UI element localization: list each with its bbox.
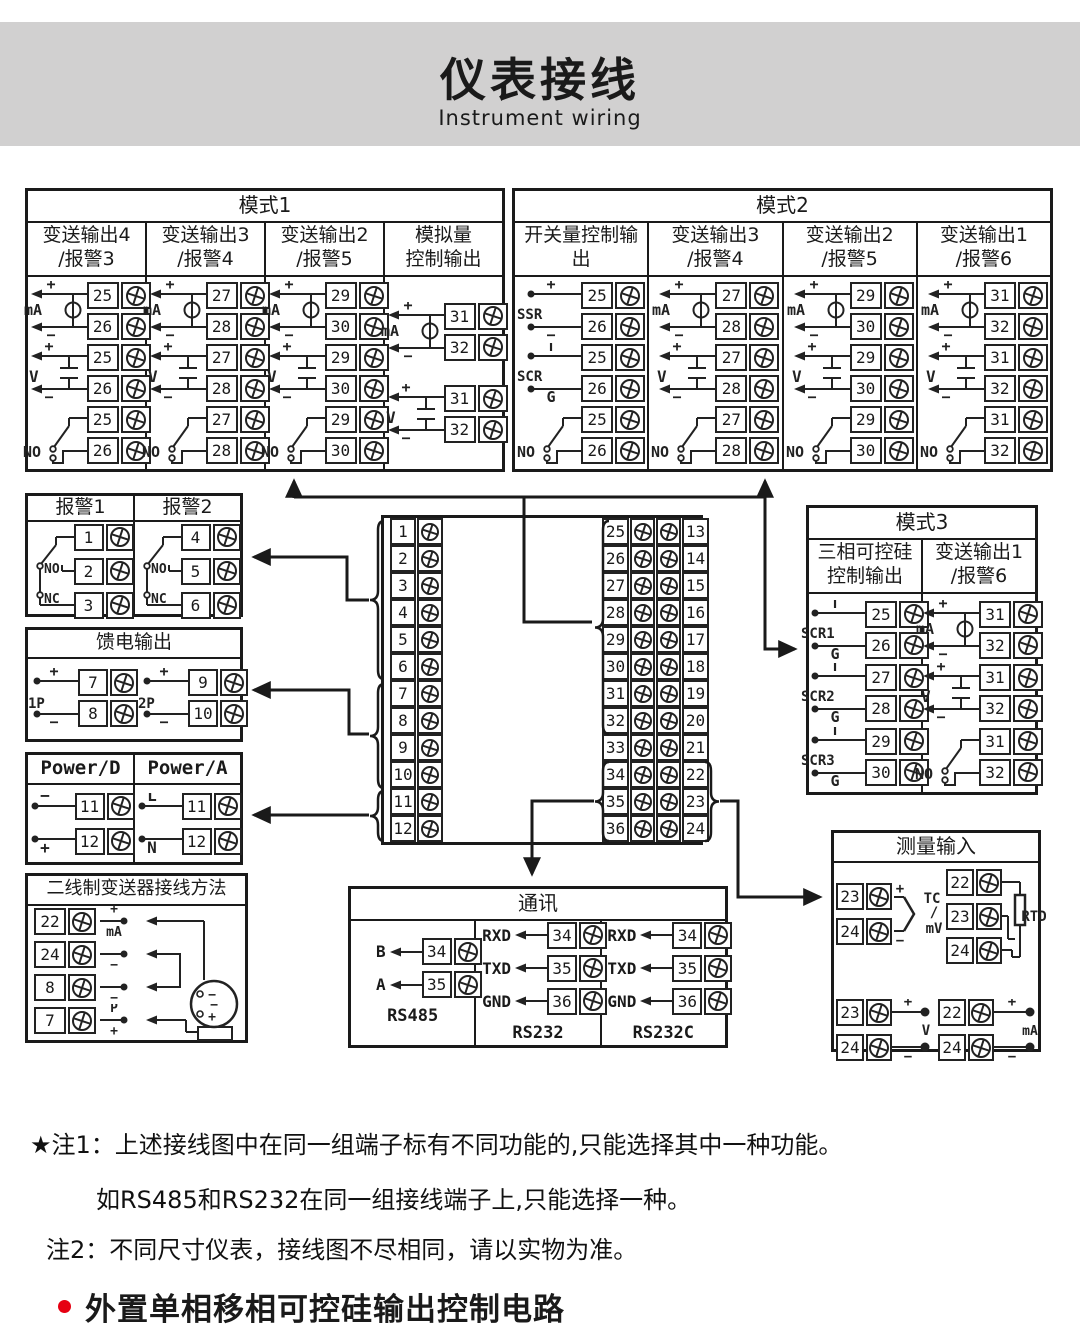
screw-icon [707, 957, 729, 979]
terminal-row: 29 [850, 282, 914, 309]
terminal-row: 7 [34, 1007, 96, 1034]
screw-icon [109, 594, 131, 616]
svg-text:V: V [921, 687, 931, 706]
svg-text:V: V [926, 367, 936, 386]
block-row-left: 1 [390, 518, 443, 545]
terminal-screw [478, 385, 508, 412]
terminal-row: 27 [715, 406, 779, 433]
screw-icon [619, 285, 641, 307]
screw-icon [659, 819, 679, 839]
svg-text:SSR: SSR [517, 307, 543, 323]
terminal-number: 4 [181, 524, 211, 551]
svg-text:mA: mA [921, 301, 939, 319]
terminal-number: 30 [850, 375, 882, 402]
tc-symbol: + −TC/mV [892, 883, 954, 947]
svg-text:G: G [547, 388, 556, 403]
terminal-screw [884, 437, 914, 464]
svg-text:+: + [159, 668, 168, 680]
terminal-number: 29 [850, 282, 882, 309]
terminal-screw [1018, 313, 1048, 340]
terminal-screw [1013, 759, 1043, 786]
terminal-row: 31 [984, 282, 1048, 309]
terminal-screw [68, 908, 96, 935]
svg-text:NO: NO [915, 765, 933, 783]
terminal-number: 29 [325, 406, 357, 433]
terminal-number: 31 [444, 303, 476, 330]
screw-icon [633, 792, 653, 812]
comm-pin: GND 36 [594, 988, 732, 1015]
terminal-number: 10 [188, 700, 218, 727]
terminal-screw [214, 793, 242, 820]
terminal-group-V: +−V 31 32 [920, 343, 1048, 403]
no-switch-symbol: NO [261, 405, 325, 465]
screw-icon [633, 657, 653, 677]
screw-icon [753, 409, 775, 431]
terminal-screw [1018, 437, 1048, 464]
screw-icon [753, 378, 775, 400]
terminal-number: 31 [979, 664, 1011, 691]
svg-text:+: + [675, 281, 684, 293]
svg-text:SCR1: SCR1 [801, 626, 835, 642]
svg-text:NO: NO [920, 443, 938, 461]
terminal-screw [478, 303, 508, 330]
measure-input-box: 测量输入 23 24 + −TC/mV 22 23 24 ? RTD 23 24… [831, 830, 1041, 1052]
terminal-row: 25 [581, 344, 645, 371]
block-row-left: 2 [390, 545, 443, 572]
svg-text:G: G [830, 645, 839, 660]
screw-icon [420, 765, 440, 785]
block-row-right: 26 14 [602, 545, 709, 572]
block-row-left: 7 [390, 680, 443, 707]
terminal-number: 31 [984, 406, 1016, 433]
svg-text:−: − [163, 388, 172, 403]
block-row-right: 35 23 [602, 788, 709, 815]
no-switch-symbol: NO [517, 405, 581, 465]
screw-icon [1017, 730, 1039, 752]
twowire-row-labels: P+ [96, 1004, 142, 1037]
svg-text:V: V [386, 408, 396, 427]
terminal-row: 11 [75, 793, 135, 820]
terminal-number: 28 [206, 313, 238, 340]
screw-icon [753, 440, 775, 462]
mode-column: 变送输出2 /报警5 +−mA 29 30 +−V 29 30 NO 29 30 [266, 221, 385, 469]
screw-icon [888, 316, 910, 338]
svg-text:mA: mA [916, 620, 934, 638]
terminal-group-NO: NO 31 32 [915, 727, 1043, 787]
terminal-row: 31 [984, 406, 1048, 433]
terminal-screw [68, 974, 96, 1001]
terminal-row: 26 [581, 313, 645, 340]
voltage-symbol: +−V [380, 384, 444, 444]
terminal-number: 30 [850, 313, 882, 340]
terminal-row: 1 [74, 524, 134, 551]
terminal-screw [884, 313, 914, 340]
terminal-screw [1013, 728, 1043, 755]
svg-text:mV: mV [926, 921, 943, 937]
mode-column: 变送输出1 /报警6 +−mA 31 32 +−V 31 32 NO 31 32 [918, 221, 1050, 469]
svg-text:NO: NO [517, 443, 535, 461]
svg-text:+: + [809, 281, 818, 293]
svg-text:G: G [830, 772, 839, 787]
svg-text:T: T [830, 600, 839, 612]
terminal-number: 22 [938, 999, 966, 1026]
terminal-screw [615, 375, 645, 402]
terminal-row: 24 [836, 1034, 892, 1061]
screw-icon [482, 388, 504, 410]
terminal-number: 35 [672, 955, 702, 982]
svg-text:+: + [941, 343, 950, 355]
terminal-number: 27 [715, 406, 747, 433]
terminal-number: 25 [581, 282, 613, 309]
terminal-row: 31 [984, 344, 1048, 371]
terminal-row: 2 [74, 558, 134, 585]
mode-column: 变送输出4 /报警3 +−mA 25 26 +−V 25 26 NO 25 26 [28, 221, 147, 469]
terminal-screw [1013, 601, 1043, 628]
comm-column-RS485: B 34 A 35 RS485 [351, 919, 476, 1045]
terminal-number: 27 [206, 344, 238, 371]
screw-icon [619, 316, 641, 338]
terminal-number: 24 [836, 918, 864, 945]
terminal-number: 24 [938, 1034, 966, 1061]
twowire-row-labels: − [96, 971, 142, 1004]
dot-terminal-symbol: TGSCR2 [801, 663, 865, 723]
terminal-screw [106, 524, 134, 551]
terminal-screw [976, 903, 1002, 930]
block-row-left: 12 [390, 815, 443, 842]
left-arrow-icon [638, 995, 672, 1007]
note-2: 注2：不同尺寸仪表，接线图不尽相同，请以实物为准。 [46, 1230, 637, 1265]
power-column: Power/D −+ 11 12 [28, 755, 135, 862]
terminal-group-NO: NO 29 30 [786, 405, 914, 465]
measure-tc: 23 24 + −TC/mV [836, 883, 954, 947]
svg-text:−: − [809, 326, 818, 341]
screw-icon [659, 738, 679, 758]
screw-icon [216, 594, 238, 616]
twowire-title: 二线制变送器接线方法 [28, 876, 245, 906]
dot-terminal-symbol: TGSCR1 [801, 600, 865, 660]
terminal-screw [615, 313, 645, 340]
terminal-row: 8 [34, 974, 96, 1001]
no-switch-symbol: NO [651, 405, 715, 465]
comm-pin: GND 36 [469, 988, 607, 1015]
screw-icon [113, 672, 135, 694]
comm-title: 通讯 [351, 889, 725, 921]
terminal-number: 24 [34, 941, 66, 968]
terminal-row: 24 [836, 918, 892, 945]
mode-column: 模拟量 控制输出 +−mA 31 32 +−V 31 32 [385, 221, 502, 469]
current-source-symbol: +−mA [920, 281, 984, 341]
terminal-row: 32 [979, 632, 1043, 659]
terminal-screw [213, 592, 241, 619]
terminal-group-NO: NO 25 26 [517, 405, 645, 465]
terminal-number: 2 [74, 558, 104, 585]
terminal-screw [1018, 375, 1048, 402]
terminal-number: 26 [87, 437, 119, 464]
screw-icon [633, 738, 653, 758]
terminal-number: 30 [865, 759, 897, 786]
current-source-symbol: +−mA [261, 281, 325, 341]
svg-text:+: + [163, 343, 172, 355]
screw-icon [420, 684, 440, 704]
terminal-group-NO: NO 27 28 [651, 405, 779, 465]
comm-pin: TXD 35 [469, 955, 607, 982]
screw-icon [659, 630, 679, 650]
screw-icon [888, 440, 910, 462]
terminal-row: 32 [979, 695, 1043, 722]
communication-box: 通讯 B 34 A 35 RS485 RXD 34 TXD 35 GND 36 … [348, 886, 728, 1048]
terminal-number: 31 [979, 728, 1011, 755]
terminal-number: 24 [946, 937, 974, 964]
terminal-screw [866, 883, 892, 910]
no-switch-symbol: NO [920, 405, 984, 465]
svg-text:+: + [40, 838, 50, 855]
terminal-screw [1013, 695, 1043, 722]
terminal-screw [1018, 282, 1048, 309]
terminal-number: 28 [715, 313, 747, 340]
mode1-box: 模式1 变送输出4 /报警3 +−mA 25 26 +−V 25 26 NO 2… [25, 188, 505, 472]
terminal-number: 31 [984, 344, 1016, 371]
current-source-symbol: +−mA [380, 302, 444, 362]
svg-text:+: + [282, 343, 291, 355]
terminal-group-NO: NO 31 32 [920, 405, 1048, 465]
mode2-box: 模式2 开关量控制输出 +−SSR 25 26 TGSCR 25 26 NO 2… [512, 188, 1053, 472]
terminal-row: 29 [850, 344, 914, 371]
comm-pin: B 34 [344, 938, 482, 965]
svg-text:NO: NO [151, 562, 167, 577]
svg-text:T: T [830, 663, 839, 675]
mode-column-title: 变送输出3 /报警4 [649, 221, 781, 277]
svg-text:mA: mA [24, 301, 42, 319]
terminal-group-mA: +−mA 31 32 [915, 600, 1043, 660]
block-row-left: 11 [390, 788, 443, 815]
alarm-column-title: 报警1 [28, 496, 133, 522]
terminal-row: 24 [938, 1034, 994, 1061]
terminal-number: 35 [422, 971, 452, 998]
terminal-row: 10 [188, 700, 248, 727]
svg-text:V: V [657, 367, 667, 386]
terminal-screw [106, 558, 134, 585]
svg-text:+: + [208, 1010, 216, 1025]
screw-icon [633, 549, 653, 569]
terminal-number: 32 [979, 695, 1011, 722]
svg-text:G: G [830, 708, 839, 723]
terminal-number: 32 [984, 375, 1016, 402]
terminal-screw [213, 524, 241, 551]
screw-icon [659, 522, 679, 542]
screw-icon [420, 792, 440, 812]
block-row-left: 3 [390, 572, 443, 599]
svg-text:−: − [403, 347, 412, 362]
terminal-number: 29 [325, 344, 357, 371]
terminal-row: 36 [672, 988, 732, 1015]
terminal-group-V: +−V 31 32 [380, 384, 508, 444]
terminal-number: 28 [206, 437, 238, 464]
terminal-number: 3 [74, 592, 104, 619]
block-row-right: 27 15 [602, 572, 709, 599]
screw-icon [1022, 378, 1044, 400]
svg-text:+: + [807, 343, 816, 355]
terminal-number: 28 [206, 375, 238, 402]
terminal-row: 4 [181, 524, 241, 551]
svg-text:T: T [547, 343, 556, 355]
screw-icon [109, 560, 131, 582]
block-row-left: 10 [390, 761, 443, 788]
terminal-row: 12 [182, 828, 242, 855]
measure-title: 测量输入 [834, 833, 1038, 863]
left-arrow-icon [388, 946, 422, 958]
dot-terminal-symbol: TGSCR [517, 343, 581, 403]
terminal-number: 28 [865, 695, 897, 722]
terminal-number: 34 [672, 922, 702, 949]
twowire-row: 7 P+ [34, 1007, 142, 1034]
terminal-row: 32 [979, 759, 1043, 786]
screw-icon [633, 819, 653, 839]
terminal-screw [749, 313, 779, 340]
screw-icon [970, 1002, 992, 1024]
screw-icon [420, 576, 440, 596]
screw-icon [420, 522, 440, 542]
screw-icon [420, 549, 440, 569]
red-bullet-icon [58, 1300, 71, 1313]
mode1-title: 模式1 [28, 191, 502, 223]
screw-icon [633, 603, 653, 623]
terminal-screw [884, 406, 914, 433]
screw-icon [707, 990, 729, 1012]
rtd-symbol: ? RTD [1002, 869, 1046, 969]
terminal-number: 27 [715, 282, 747, 309]
svg-text:/: / [930, 905, 938, 921]
left-arrow-icon [513, 962, 547, 974]
terminal-number: 26 [581, 313, 613, 340]
feed-output-box: 馈电输出 +−1P 7 8 +−2P 9 10 [25, 627, 243, 742]
svg-text:+: + [943, 281, 952, 293]
svg-text:−: − [46, 326, 55, 341]
terminal-screw [968, 1034, 994, 1061]
screw-icon [1017, 603, 1039, 625]
terminal-group-SCR2: TGSCR2 27 28 [801, 663, 929, 723]
terminal-screw [884, 282, 914, 309]
dot-terminal-symbol: +−SSR [517, 281, 581, 341]
terminal-number: 30 [325, 437, 357, 464]
comm-pin: A 35 [344, 971, 482, 998]
block-row-left: 9 [390, 734, 443, 761]
dot-terminal-symbol: TGSCR3 [801, 727, 865, 787]
current-source-symbol: +−mA [651, 281, 715, 341]
screw-icon [888, 285, 910, 307]
terminal-number: 23 [946, 903, 974, 930]
terminal-number: 30 [850, 437, 882, 464]
screw-icon [659, 603, 679, 623]
terminal-number: 9 [188, 669, 218, 696]
terminal-row: 30 [850, 437, 914, 464]
svg-text:mA: mA [381, 322, 399, 340]
screw-icon [110, 795, 132, 817]
terminal-screw [220, 700, 248, 727]
svg-text:−: − [673, 388, 682, 403]
terminal-row: 34 [672, 922, 732, 949]
terminal-number: 28 [715, 437, 747, 464]
terminal-number: 31 [984, 282, 1016, 309]
terminal-number: 32 [979, 632, 1011, 659]
terminal-number: 12 [75, 828, 105, 855]
svg-text:+: + [896, 883, 904, 897]
terminal-number: 8 [34, 974, 66, 1001]
terminal-row: 23 [836, 999, 892, 1026]
mode-column-title: 变送输出3 /报警4 [147, 221, 264, 277]
terminal-row: 32 [984, 437, 1048, 464]
svg-text:−: − [675, 326, 684, 341]
svg-text:T: T [830, 727, 839, 739]
screw-icon [71, 944, 93, 966]
terminal-row: 23 [836, 883, 892, 910]
power-symbol: −+ [27, 793, 75, 855]
screw-icon [1017, 698, 1039, 720]
mode-column: 变送输出2 /报警5 +−mA 29 30 +−V 29 30 NO 29 30 [784, 221, 918, 469]
measure-ma: 22 24 + − mA [938, 999, 1042, 1063]
svg-text:RTD: RTD [1021, 909, 1046, 925]
terminal-row: 22 [938, 999, 994, 1026]
terminal-row: 30 [850, 313, 914, 340]
svg-text:SCR3: SCR3 [801, 753, 835, 769]
terminal-number: 7 [34, 1007, 66, 1034]
screw-icon [216, 526, 238, 548]
screw-icon [420, 819, 440, 839]
svg-text:−: − [904, 1049, 912, 1063]
power-column: Power/A LN 11 12 [135, 755, 240, 862]
block-row-right: 34 22 [602, 761, 709, 788]
terminal-screw [749, 406, 779, 433]
voltage-symbol: +−V [920, 343, 984, 403]
terminal-group-V: +−V 29 30 [261, 343, 389, 403]
feed-group-2P: +−2P 9 10 [138, 668, 248, 728]
terminal-row: 9 [188, 669, 248, 696]
left-arrow-icon [638, 962, 672, 974]
svg-text:−: − [284, 326, 293, 341]
block-row-right: 25 13 [602, 518, 709, 545]
mode-column: 变送输出1 /报警6 +−mA 31 32 +−V 31 32 NO 31 32 [923, 538, 1035, 792]
terminal-row: 28 [715, 313, 779, 340]
v-symbol: + − V [892, 999, 936, 1063]
terminal-number: 36 [547, 988, 577, 1015]
svg-text:+: + [904, 999, 912, 1010]
section-bullet: 外置单相移相可控硅输出控制电路 [58, 1284, 565, 1329]
terminal-screw [866, 918, 892, 945]
left-arrow-icon [513, 929, 547, 941]
terminal-screw [107, 828, 135, 855]
terminal-number: 11 [182, 793, 212, 820]
screw-icon [1017, 667, 1039, 689]
screw-icon [659, 684, 679, 704]
svg-text:mA: mA [1022, 1024, 1038, 1039]
terminal-row: 12 [75, 828, 135, 855]
terminal-screw [106, 592, 134, 619]
screw-icon [619, 347, 641, 369]
terminal-number: 30 [325, 313, 357, 340]
terminal-group-SSR: +−SSR 25 26 [517, 281, 645, 341]
svg-text:−: − [943, 326, 952, 341]
svg-text:−: − [936, 708, 945, 723]
svg-text:+: + [547, 281, 556, 293]
terminal-number: 26 [581, 437, 613, 464]
svg-text:+: + [284, 281, 293, 293]
terminal-row: 28 [715, 375, 779, 402]
terminal-number: 12 [182, 828, 212, 855]
terminal-number: 24 [836, 1034, 864, 1061]
screw-icon [978, 906, 1000, 928]
terminal-screw [110, 669, 138, 696]
voltage-symbol: +−V [23, 343, 87, 403]
mode-column-title: 变送输出2 /报警5 [784, 221, 916, 277]
